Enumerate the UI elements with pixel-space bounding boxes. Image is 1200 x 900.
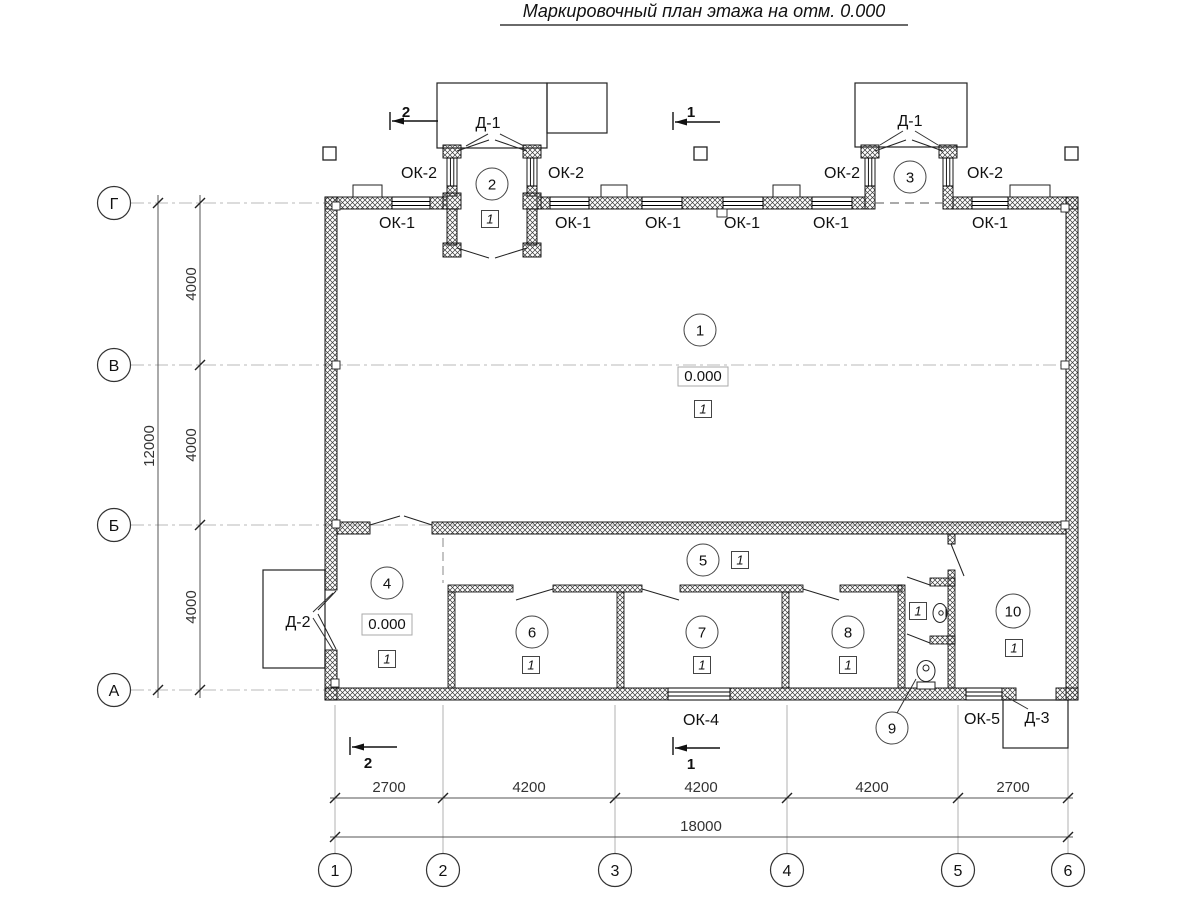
type-marker-room2: 1 — [486, 212, 493, 227]
room-number-8: 8 — [844, 625, 852, 642]
room-number-7: 7 — [698, 625, 706, 642]
axis-label-row-v: В — [109, 358, 120, 375]
axis-label-col-5: 5 — [954, 863, 963, 880]
dim-bottom-seg3: 4200 — [684, 779, 717, 796]
toilet-fixture — [917, 661, 935, 690]
window-ok2-3 — [865, 158, 875, 186]
type-marker-room8: 1 — [844, 658, 851, 673]
type-marker-room7: 1 — [698, 658, 705, 673]
drawing-sheet: Маркировочный план этажа на отм. 0.000 — [0, 0, 1200, 900]
section-label-1-bottom: 1 — [687, 756, 695, 773]
floor-plan-drawing: Маркировочный план этажа на отм. 0.000 — [0, 0, 1200, 900]
label-window-ok2-1: ОК-2 — [401, 165, 437, 182]
window-ok5 — [966, 688, 1002, 700]
label-door-d1-left: Д-1 — [475, 115, 500, 132]
axis-label-col-6: 6 — [1064, 863, 1073, 880]
dim-bottom-seg1: 2700 — [372, 779, 405, 796]
dim-bottom-seg5: 2700 — [996, 779, 1029, 796]
window-ok1-2 — [550, 197, 589, 209]
type-marker-room1: 1 — [699, 402, 706, 417]
section-mark-1-bottom — [673, 737, 720, 755]
plan-title: Маркировочный план этажа на отм. 0.000 — [523, 1, 886, 21]
label-window-ok1-2: ОК-1 — [555, 215, 591, 232]
type-marker-room4: 1 — [383, 652, 390, 667]
axis-centerlines — [131, 203, 1070, 690]
type-marker-room6: 1 — [527, 658, 534, 673]
exterior-walls — [325, 145, 1078, 700]
label-window-ok2-3: ОК-2 — [824, 165, 860, 182]
label-window-ok1-4: ОК-1 — [724, 215, 760, 232]
window-ok1-1 — [392, 197, 430, 209]
type-marker-washroom: 1 — [914, 604, 921, 619]
room-number-2: 2 — [488, 177, 496, 194]
label-window-ok2-4: ОК-2 — [967, 165, 1003, 182]
door-room4 — [370, 516, 432, 525]
section-label-2-bottom: 2 — [364, 755, 372, 772]
elevation-room4: 0.000 — [368, 616, 406, 633]
axis-label-row-g: Г — [110, 196, 119, 213]
window-ok1-4 — [723, 197, 763, 209]
room-number-5: 5 — [699, 553, 707, 570]
type-marker-room10: 1 — [1010, 641, 1017, 656]
section-mark-2-top — [390, 112, 438, 130]
label-window-ok4: ОК-4 — [683, 712, 719, 729]
porches — [263, 83, 1068, 748]
axis-label-row-a: А — [109, 683, 120, 700]
label-window-ok1-1: ОК-1 — [379, 215, 415, 232]
room-number-6: 6 — [528, 625, 536, 642]
label-window-ok5: ОК-5 — [964, 711, 1000, 728]
door-wc-leaf — [907, 634, 930, 643]
window-ok2-1 — [447, 158, 457, 186]
axis-label-col-2: 2 — [439, 863, 448, 880]
axis-circles — [98, 187, 1085, 887]
window-ok2-2 — [527, 158, 537, 186]
window-ok1-3 — [642, 197, 682, 209]
type-marker-boxes — [379, 211, 1023, 674]
sink-fixture — [933, 604, 947, 623]
door-washroom-leaf — [907, 577, 930, 585]
dim-left-seg2: 4000 — [183, 428, 200, 461]
dim-left-total: 12000 — [141, 425, 158, 467]
dim-bottom-total: 18000 — [680, 818, 722, 835]
axis-label-row-b: Б — [109, 518, 120, 535]
elevation-room1: 0.000 — [684, 368, 722, 385]
label-window-ok1-5: ОК-1 — [813, 215, 849, 232]
label-door-d3: Д-3 — [1024, 710, 1049, 727]
label-window-ok2-2: ОК-2 — [548, 165, 584, 182]
door-room8-leaf — [803, 589, 839, 600]
door-room6-leaf — [516, 589, 553, 600]
column-marker-squares — [323, 147, 1078, 160]
label-window-ok1-3: ОК-1 — [645, 215, 681, 232]
wall-notches — [331, 202, 1069, 687]
door-room7-leaf — [642, 589, 679, 600]
window-ok2-4 — [943, 158, 953, 186]
dim-left-seg3: 4000 — [183, 590, 200, 623]
porch-left-entrance-step — [547, 83, 607, 133]
dim-left-seg1: 4000 — [183, 267, 200, 300]
room-number-1: 1 — [696, 323, 704, 340]
dim-bottom-seg2: 4200 — [512, 779, 545, 796]
dim-bottom-seg4: 4200 — [855, 779, 888, 796]
section-label-2-top: 2 — [402, 104, 410, 121]
label-door-d1-right: Д-1 — [897, 113, 922, 130]
section-mark-2-bottom — [350, 737, 397, 755]
section-mark-1-top — [673, 112, 720, 130]
label-door-d2: Д-2 — [285, 614, 310, 631]
type-marker-room5: 1 — [736, 553, 743, 568]
axis-label-col-4: 4 — [783, 863, 792, 880]
window-ok1-5 — [812, 197, 852, 209]
axis-label-col-1: 1 — [331, 863, 340, 880]
room-number-10: 10 — [1005, 604, 1022, 621]
room-number-3: 3 — [906, 170, 914, 187]
room-number-4: 4 — [383, 576, 391, 593]
door-d1-left-in — [457, 248, 527, 258]
axis-label-col-3: 3 — [611, 863, 620, 880]
label-window-ok1-6: ОК-1 — [972, 215, 1008, 232]
window-ok4 — [668, 688, 730, 700]
window-ok1-6 — [972, 197, 1008, 209]
section-label-1-top: 1 — [687, 104, 695, 121]
room-number-9: 9 — [888, 721, 896, 738]
